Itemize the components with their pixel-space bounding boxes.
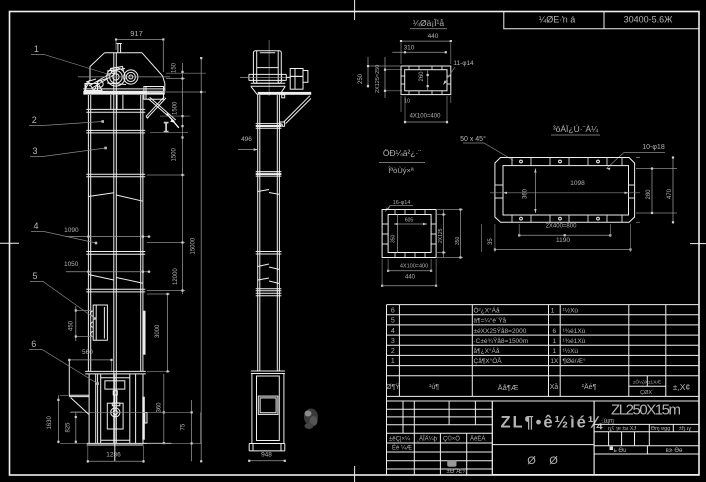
svg-text:¼ØE·ŉ á: ¼ØE·ŉ á bbox=[539, 15, 575, 25]
svg-text:±,X¢: ±,X¢ bbox=[673, 382, 691, 392]
svg-text:5: 5 bbox=[32, 271, 37, 281]
svg-text:·C±é¾Ÿå8=1500m: ·C±é¾Ÿå8=1500m bbox=[474, 337, 529, 345]
svg-text:280: 280 bbox=[646, 189, 652, 200]
svg-text:30400-5.6Ж: 30400-5.6Ж bbox=[624, 15, 674, 25]
svg-text:¼Øä¡Î¹å: ¼Øä¡Î¹å bbox=[413, 18, 444, 28]
svg-text:3: 3 bbox=[32, 146, 37, 156]
svg-text:Χå: Χå bbox=[550, 383, 559, 391]
svg-text:12000: 12000 bbox=[173, 268, 179, 285]
svg-text:11-φ14: 11-φ14 bbox=[453, 60, 474, 67]
svg-text:4: 4 bbox=[391, 328, 395, 335]
svg-text:360: 360 bbox=[157, 402, 163, 413]
svg-text:825: 825 bbox=[66, 422, 72, 433]
svg-text:6: 6 bbox=[552, 328, 556, 335]
svg-text:2X125=250: 2X125=250 bbox=[375, 65, 381, 93]
svg-text:6: 6 bbox=[391, 308, 395, 315]
svg-text:310: 310 bbox=[404, 45, 415, 52]
svg-text:560: 560 bbox=[82, 349, 93, 356]
svg-text:1: 1 bbox=[551, 308, 555, 315]
svg-text:1500: 1500 bbox=[172, 147, 178, 161]
svg-text:±ɧ ɹɣ: ±ɧ ɹɣ bbox=[679, 426, 691, 432]
svg-text:1090: 1090 bbox=[64, 227, 79, 234]
svg-text:1286: 1286 bbox=[106, 452, 121, 459]
svg-text:2: 2 bbox=[391, 348, 395, 355]
svg-text:450: 450 bbox=[69, 320, 75, 331]
svg-text:1X: 1X bbox=[550, 358, 559, 365]
svg-text:Ç©×Ö: Ç©×Ö bbox=[443, 436, 460, 443]
svg-text:3: 3 bbox=[391, 338, 395, 345]
svg-text:Ô²¿X°Áå: Ô²¿X°Áå bbox=[474, 306, 500, 315]
svg-text:1050: 1050 bbox=[64, 261, 79, 268]
svg-text:ZL¶•ê½ìé¼: ZL¶•ê½ìé¼ bbox=[501, 414, 603, 432]
svg-text:¹½Xù: ¹½Xù bbox=[563, 347, 579, 355]
svg-text:ZL250X15m: ZL250X15m bbox=[611, 402, 681, 419]
svg-text:¹¾é1Xù: ¹¾é1Xù bbox=[563, 338, 586, 345]
svg-text:605: 605 bbox=[405, 218, 414, 224]
svg-text:1: 1 bbox=[391, 358, 395, 365]
svg-text:350: 350 bbox=[455, 236, 461, 245]
svg-text:ÄêËÁ: ÄêËÁ bbox=[470, 436, 485, 443]
svg-text:1: 1 bbox=[552, 338, 556, 345]
svg-text:16-φ14: 16-φ14 bbox=[393, 200, 411, 206]
svg-text:¹¾é1Xù: ¹¾é1Xù bbox=[563, 328, 586, 335]
svg-text:ʙɝ Өө: ʙɝ Өө bbox=[666, 448, 683, 454]
svg-text:Ɵɱ ɐɡg: Ɵɱ ɐɡg bbox=[651, 426, 671, 432]
svg-text:1: 1 bbox=[34, 44, 39, 54]
svg-text:Ø¶Ÿ: Ø¶Ÿ bbox=[386, 383, 400, 391]
svg-text:50 x 45°: 50 x 45° bbox=[460, 135, 486, 143]
svg-text:±éXX25Ÿå8=2000: ±éXX25Ÿå8=2000 bbox=[474, 327, 527, 335]
svg-text:440: 440 bbox=[428, 33, 439, 40]
svg-text:±Ô¼)X±1ΧÆ: ±Ô¼)X±1ΧÆ bbox=[633, 379, 662, 386]
svg-text:250: 250 bbox=[358, 73, 364, 84]
svg-text:å¶¿X°Áå: å¶¿X°Áå bbox=[474, 346, 500, 355]
svg-text:496: 496 bbox=[241, 136, 252, 143]
svg-text:2X125: 2X125 bbox=[438, 228, 444, 243]
svg-text:1630: 1630 bbox=[47, 415, 53, 429]
svg-text:ÇØΧ´: ÇØΧ´ bbox=[640, 390, 654, 396]
svg-text:±êÇ|×¼: ±êÇ|×¼ bbox=[389, 437, 411, 443]
svg-text:ь Өʋ: ь Өʋ bbox=[614, 448, 627, 454]
svg-text:260: 260 bbox=[419, 71, 425, 82]
svg-text:15000: 15000 bbox=[191, 237, 197, 254]
svg-text:ÖÐ¼ä²¿·¨: ÖÐ¼ä²¿·¨ bbox=[383, 148, 421, 158]
svg-text:¹½Xù: ¹½Xù bbox=[563, 307, 579, 315]
svg-text:2X400=800: 2X400=800 bbox=[546, 224, 578, 230]
svg-text:Çå¶X°ÓÅ: Çå¶X°ÓÅ bbox=[474, 356, 503, 365]
svg-text:75: 75 bbox=[181, 423, 187, 430]
svg-text:2: 2 bbox=[32, 115, 37, 125]
svg-text:350: 350 bbox=[391, 234, 397, 243]
svg-text:Éè ¼Æ: Éè ¼Æ bbox=[392, 445, 412, 452]
svg-text:10-φ18: 10-φ18 bbox=[642, 144, 665, 151]
svg-text:150: 150 bbox=[172, 62, 178, 73]
svg-text:948: 948 bbox=[261, 452, 272, 459]
svg-text:1: 1 bbox=[552, 348, 556, 355]
svg-text:Äå¶Æ: Äå¶Æ bbox=[498, 383, 519, 392]
svg-text:¹ú¶: ¹ú¶ bbox=[429, 384, 439, 391]
svg-text:440: 440 bbox=[405, 275, 416, 281]
svg-text:6: 6 bbox=[31, 339, 36, 349]
svg-text:470: 470 bbox=[667, 188, 673, 199]
svg-text:1098: 1098 bbox=[570, 180, 585, 187]
svg-text:±Ɵ Æ¼: ±Ɵ Æ¼ bbox=[447, 469, 469, 475]
svg-text:¶Øé/Æ°: ¶Øé/Æ° bbox=[563, 357, 586, 365]
svg-text:Ø: Ø bbox=[549, 455, 558, 467]
svg-text:1500: 1500 bbox=[173, 101, 179, 115]
svg-text:ä¶=¼°é´Ÿå: ä¶=¼°é´Ÿå bbox=[474, 317, 507, 325]
svg-text:³öÁÏ¿Ú·¨À¼: ³öÁÏ¿Ú·¨À¼ bbox=[553, 124, 599, 134]
svg-text:917: 917 bbox=[130, 29, 143, 38]
svg-text:4X100=400: 4X100=400 bbox=[410, 114, 442, 120]
svg-text:360: 360 bbox=[523, 188, 529, 199]
svg-text:Ø: Ø bbox=[527, 455, 536, 467]
svg-text:4: 4 bbox=[33, 221, 38, 231]
svg-text:1190: 1190 bbox=[556, 237, 570, 244]
svg-text:ȵʕ ɿʀ ±ʁ ΧɈ: ȵʕ ɿʀ ±ʁ ΧɈ bbox=[608, 426, 637, 432]
svg-text:¸ÄÎÄ¼þ: ¸ÄÎÄ¼þ bbox=[417, 436, 438, 443]
svg-text:5: 5 bbox=[391, 318, 395, 325]
svg-text:4X100=400: 4X100=400 bbox=[400, 264, 428, 270]
svg-text:²Äé¶: ²Äé¶ bbox=[582, 383, 597, 391]
svg-text:35: 35 bbox=[488, 238, 494, 245]
svg-text:ÎªòÙý×ª: ÎªòÙý×ª bbox=[387, 166, 414, 175]
svg-text:3000: 3000 bbox=[155, 324, 161, 338]
